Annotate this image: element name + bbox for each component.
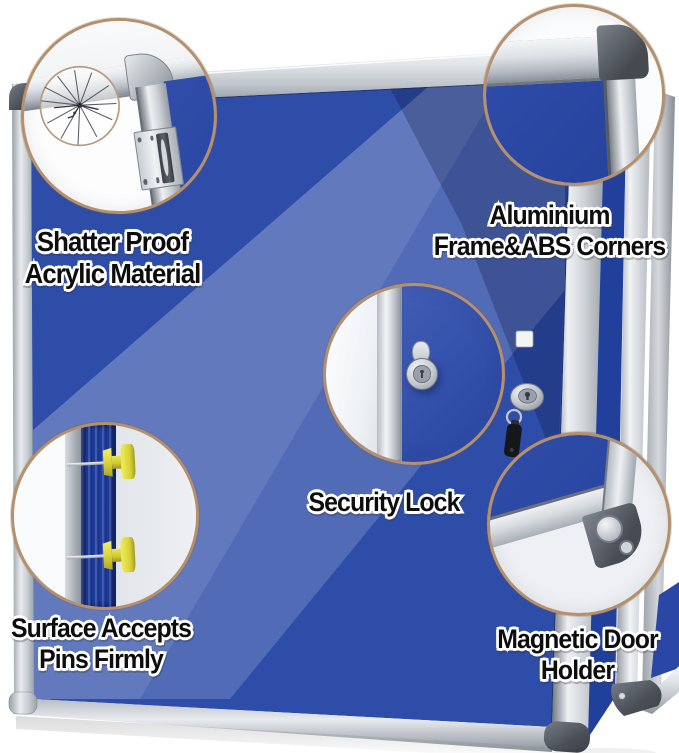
callout-lock	[323, 283, 505, 465]
callout-shatterproof	[21, 18, 217, 214]
corner-detail	[483, 4, 665, 186]
felt-detail	[483, 75, 621, 186]
shattered-glass-icon	[37, 65, 123, 151]
label-security-lock: Security Lock	[292, 487, 476, 518]
push-pin	[66, 535, 159, 574]
push-pin	[66, 443, 159, 482]
screw-icon	[155, 177, 159, 183]
label-line: Holder	[479, 655, 677, 686]
label-line: Pins Firmly	[6, 644, 196, 675]
hinge-detail	[133, 126, 184, 190]
corner-bottom-left	[9, 692, 37, 714]
label-line: Frame&ABS Corners	[430, 231, 668, 262]
screw-icon	[143, 179, 147, 185]
screw-icon	[150, 135, 154, 141]
product-feature-image: Shatter Proof Acrylic Material Aluminium…	[0, 0, 679, 753]
label-aluminium-frame: Aluminium Frame&ABS Corners	[430, 200, 668, 261]
magnet-disc	[595, 515, 623, 543]
label-line: Shatter Proof	[0, 226, 276, 258]
label-line: Acrylic Material	[0, 258, 276, 290]
label-line: Security Lock	[292, 487, 476, 518]
corner-screw	[619, 693, 626, 700]
glare-detail	[326, 286, 377, 462]
screw-icon	[619, 540, 634, 555]
label-magnetic-door-holder: Magnetic Door Holder	[479, 624, 677, 685]
label-shatter-proof: Shatter Proof Acrylic Material	[0, 226, 276, 289]
abs-corner-detail	[596, 23, 649, 80]
lock-cylinder	[406, 358, 438, 390]
aluminium-strip-detail	[377, 286, 402, 462]
callout-pins	[11, 422, 199, 610]
screw-icon	[137, 137, 141, 143]
label-line: Magnetic Door	[479, 624, 677, 655]
callout-frame-corner	[483, 4, 665, 186]
label-line: Aluminium	[430, 200, 668, 231]
label-line: Surface Accepts	[6, 613, 196, 644]
label-surface-pins: Surface Accepts Pins Firmly	[6, 613, 196, 674]
callout-magnet	[487, 432, 671, 616]
